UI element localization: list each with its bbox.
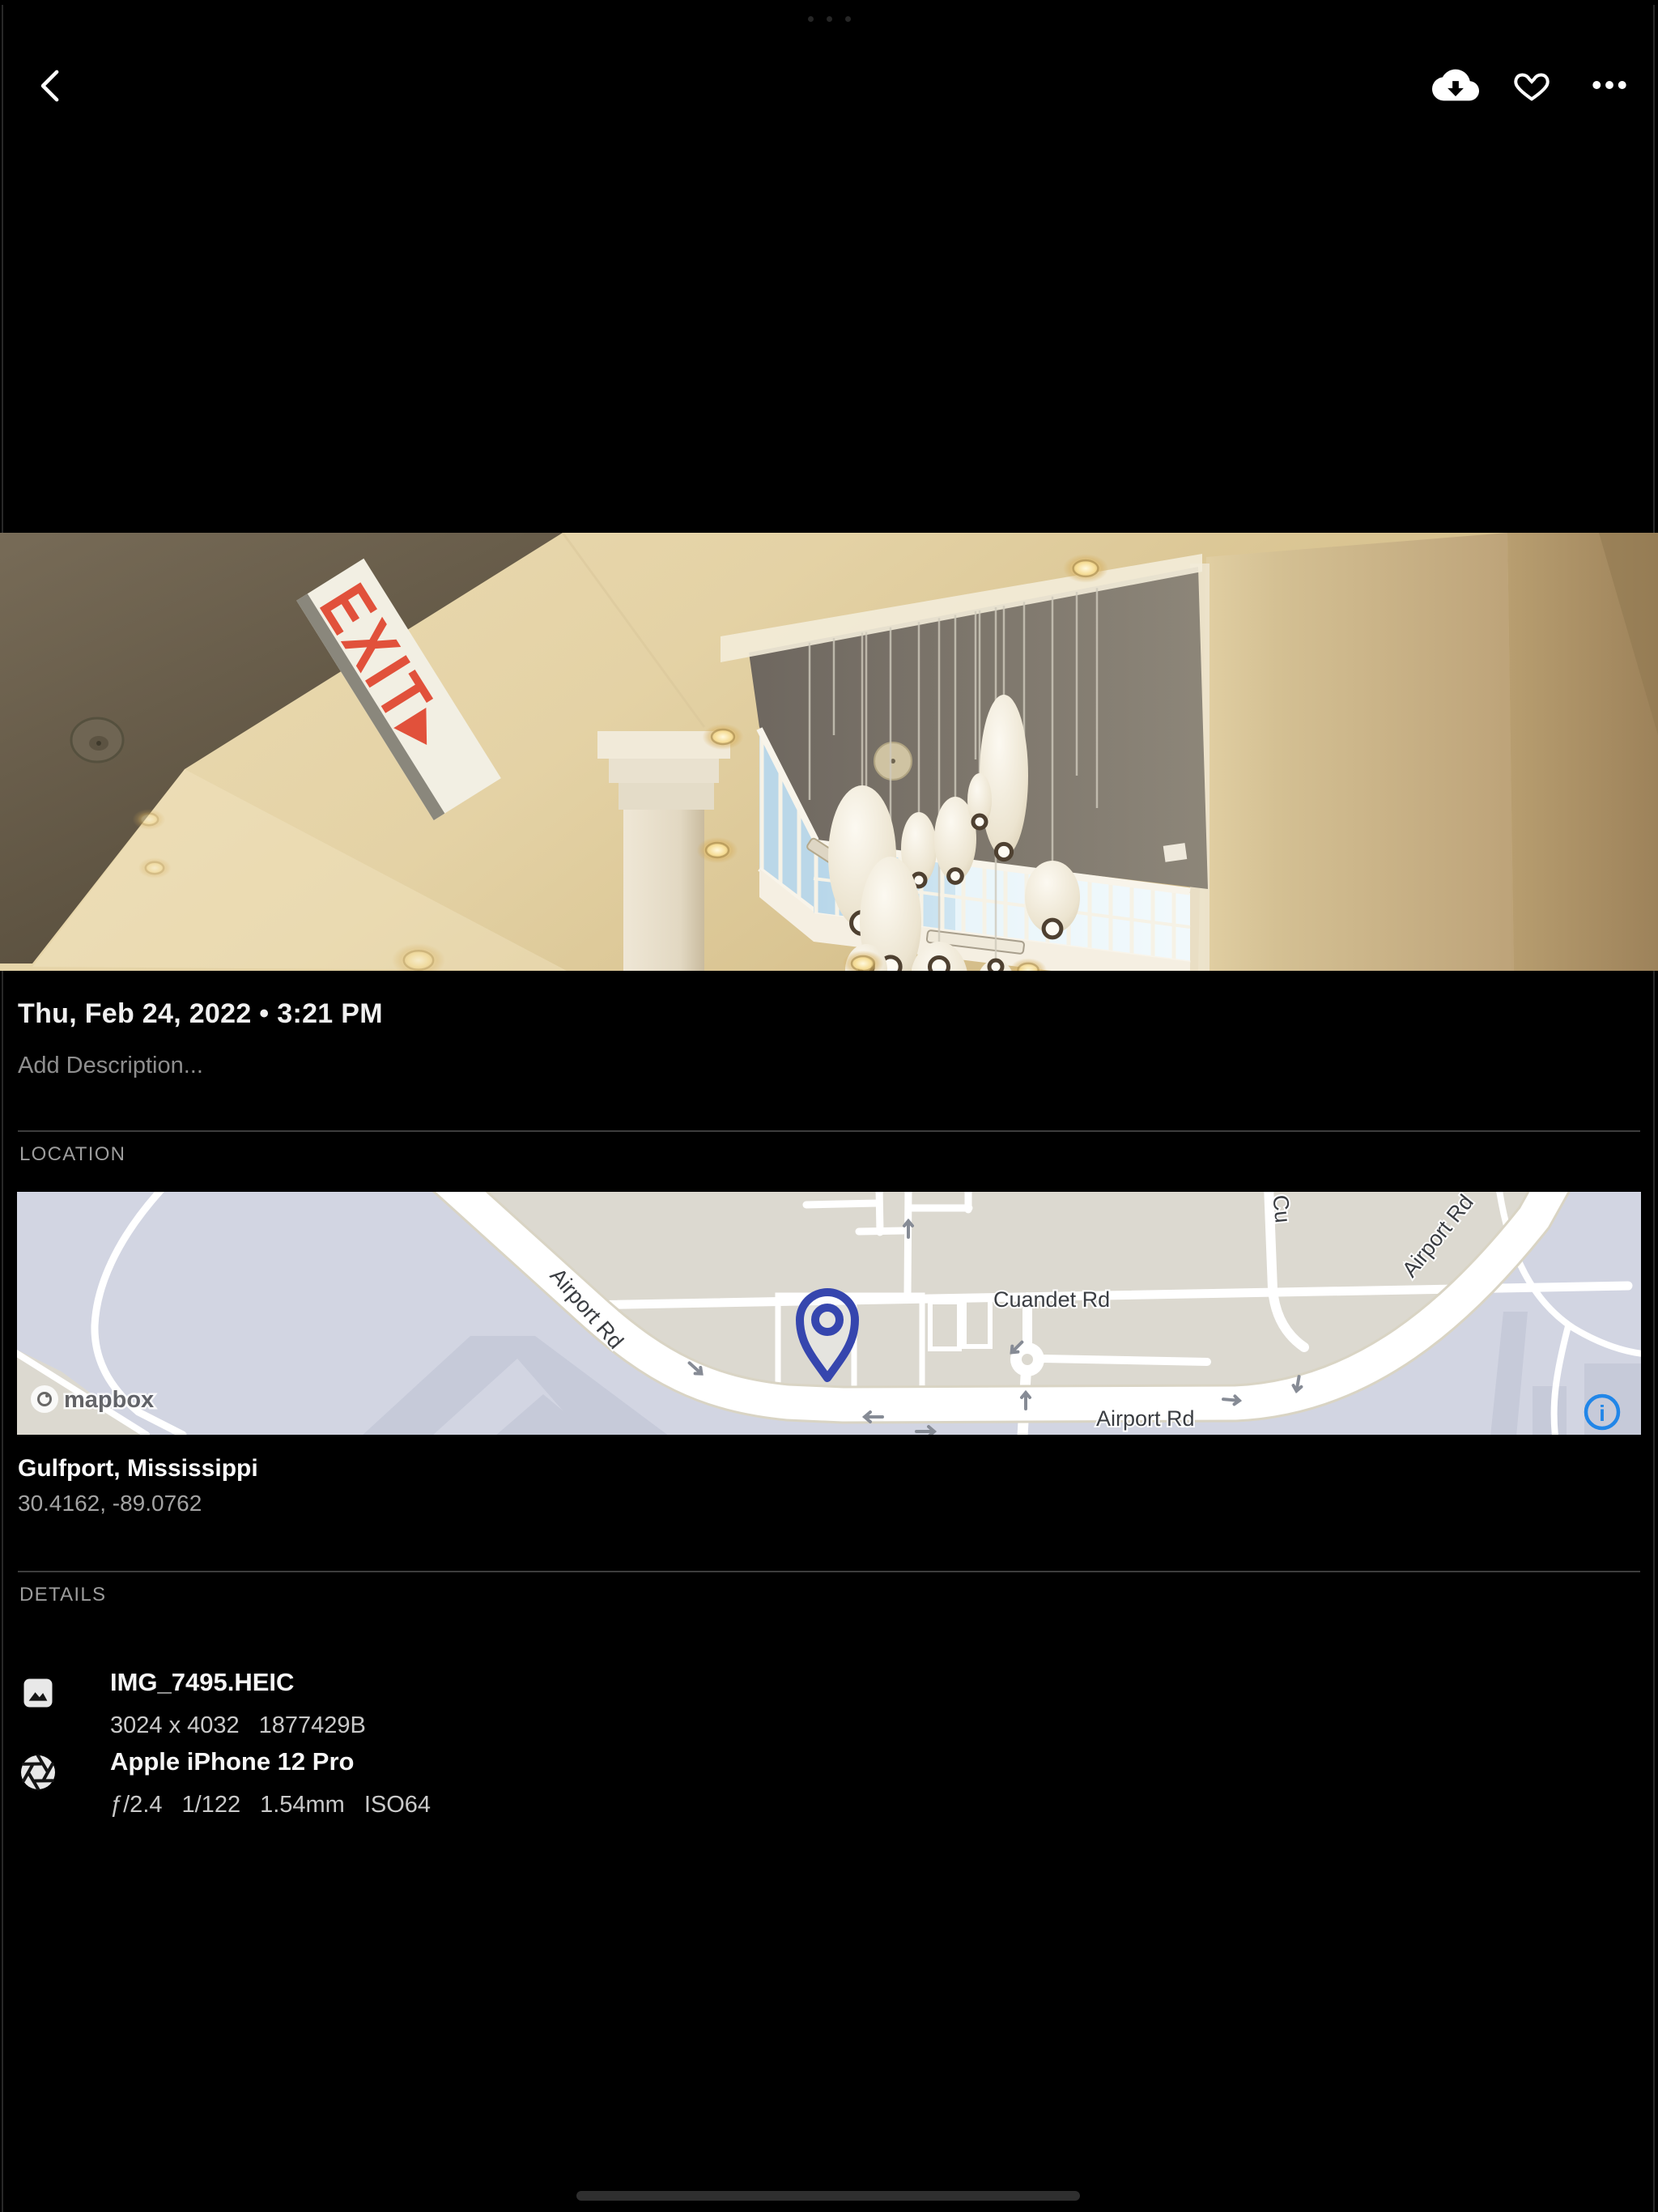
smoke-detector xyxy=(71,718,123,762)
mapbox-attribution[interactable]: mapbox xyxy=(31,1385,154,1413)
divider-details xyxy=(18,1571,1640,1572)
location-place: Gulfport, Mississippi xyxy=(18,1455,258,1482)
file-dimensions: 3024 x 4032 xyxy=(110,1712,240,1739)
image-icon xyxy=(21,1676,55,1714)
favorite-button[interactable] xyxy=(1511,65,1552,105)
svg-text:i: i xyxy=(1599,1401,1605,1426)
aperture-icon xyxy=(19,1754,57,1795)
screen-edge-left xyxy=(2,5,3,2212)
camera-shutter: 1/122 xyxy=(182,1792,241,1819)
location-section-label: LOCATION xyxy=(19,1143,125,1166)
map-canvas: Airport Rd Cuandet Rd Airport Rd Airport… xyxy=(17,1192,1641,1435)
file-size: 1877429B xyxy=(259,1712,366,1739)
camera-aperture: ƒ/2.4 xyxy=(110,1792,163,1819)
column-capital-mid xyxy=(609,759,719,783)
map-block-se2 xyxy=(1533,1386,1567,1435)
photo-datetime: Thu, Feb 24, 2022 • 3:21 PM xyxy=(18,998,383,1030)
right-pillar xyxy=(1198,533,1514,971)
chevron-left-icon xyxy=(33,66,72,105)
heart-icon xyxy=(1511,65,1552,105)
svg-text:Cuandet Rd: Cuandet Rd xyxy=(993,1287,1110,1312)
map-roundabout-island xyxy=(1022,1354,1033,1365)
divider-location xyxy=(18,1130,1640,1132)
screen-edge-right xyxy=(1653,5,1655,2212)
svg-text:mapbox: mapbox xyxy=(64,1387,154,1413)
column-capital-neck xyxy=(619,783,714,810)
photo-ceiling-atrium: EXIT▸ xyxy=(0,533,1658,971)
description-placeholder[interactable]: Add Description... xyxy=(18,1053,203,1079)
svg-text:Cu: Cu xyxy=(1268,1193,1295,1223)
ellipsis-icon xyxy=(1588,66,1631,104)
camera-iso: ISO64 xyxy=(364,1792,431,1819)
cloud-download-icon xyxy=(1432,62,1479,108)
multitask-indicator xyxy=(0,16,1658,22)
details-section-label: DETAILS xyxy=(19,1584,106,1606)
svg-text:Airport Rd: Airport Rd xyxy=(1096,1406,1195,1431)
photo-viewer[interactable]: EXIT▸ xyxy=(0,533,1658,971)
camera-meta: ƒ/2.4 1/122 1.54mm ISO64 xyxy=(110,1792,431,1819)
home-indicator[interactable] xyxy=(576,2191,1080,2201)
camera-focal-length: 1.54mm xyxy=(260,1792,345,1819)
location-coordinates: 30.4162, -89.0762 xyxy=(18,1491,202,1516)
speaker-box xyxy=(1163,843,1188,862)
location-map[interactable]: Airport Rd Cuandet Rd Airport Rd Airport… xyxy=(17,1192,1641,1435)
back-button[interactable] xyxy=(33,66,72,105)
file-name: IMG_7495.HEIC xyxy=(110,1668,294,1697)
download-button[interactable] xyxy=(1432,62,1479,108)
more-options-button[interactable] xyxy=(1588,66,1631,104)
column-shaft xyxy=(623,810,704,971)
file-meta: 3024 x 4032 1877429B xyxy=(110,1712,366,1739)
camera-model: Apple iPhone 12 Pro xyxy=(110,1747,354,1776)
